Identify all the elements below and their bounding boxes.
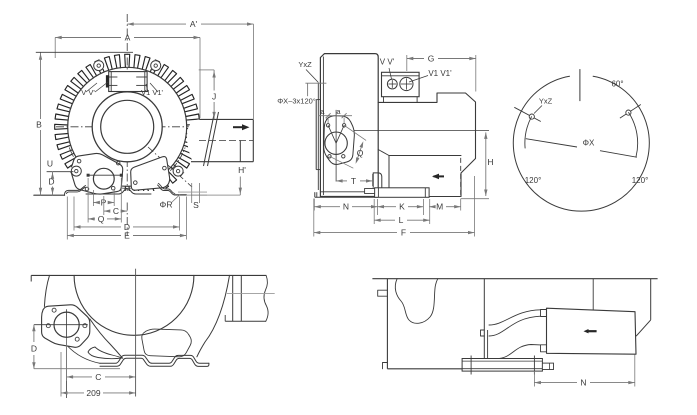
- svg-text:D: D: [48, 176, 54, 186]
- svg-text:E: E: [124, 231, 130, 241]
- svg-text:G: G: [428, 54, 435, 64]
- svg-text:U: U: [47, 159, 53, 169]
- svg-text:ΦX–3x120°: ΦX–3x120°: [277, 96, 316, 105]
- svg-text:M: M: [436, 202, 443, 212]
- svg-text:YxZ: YxZ: [298, 60, 312, 69]
- svg-text:A': A': [190, 19, 198, 29]
- svg-text:120°: 120°: [632, 176, 649, 185]
- svg-text:B: B: [36, 119, 42, 129]
- svg-text:J: J: [212, 91, 216, 101]
- svg-text:S: S: [193, 200, 199, 210]
- svg-text:209: 209: [86, 388, 100, 398]
- svg-text:Q: Q: [357, 148, 364, 158]
- svg-text:ΦX: ΦX: [583, 138, 595, 147]
- svg-text:K: K: [399, 202, 405, 212]
- svg-text:N: N: [580, 378, 586, 388]
- svg-text:H': H': [238, 165, 246, 175]
- svg-text:Q: Q: [98, 214, 105, 224]
- svg-text:L: L: [399, 215, 404, 225]
- svg-text:N: N: [343, 202, 349, 212]
- svg-text:T: T: [351, 176, 356, 186]
- svg-text:H: H: [487, 157, 493, 167]
- svg-text:C: C: [95, 372, 101, 382]
- svg-text:C: C: [113, 206, 119, 216]
- svg-text:V V': V V': [380, 58, 395, 67]
- svg-text:A: A: [125, 33, 131, 43]
- svg-text:F: F: [401, 228, 406, 238]
- svg-text:60°: 60°: [611, 80, 623, 89]
- svg-text:120°: 120°: [525, 176, 542, 185]
- svg-text:V V': V V': [81, 88, 95, 97]
- svg-text:ΦR: ΦR: [160, 200, 173, 210]
- svg-text:YxZ: YxZ: [539, 97, 553, 106]
- svg-text:V1 V1': V1 V1': [428, 69, 452, 78]
- svg-text:D: D: [31, 344, 37, 354]
- svg-text:V1 V1': V1 V1': [141, 88, 163, 97]
